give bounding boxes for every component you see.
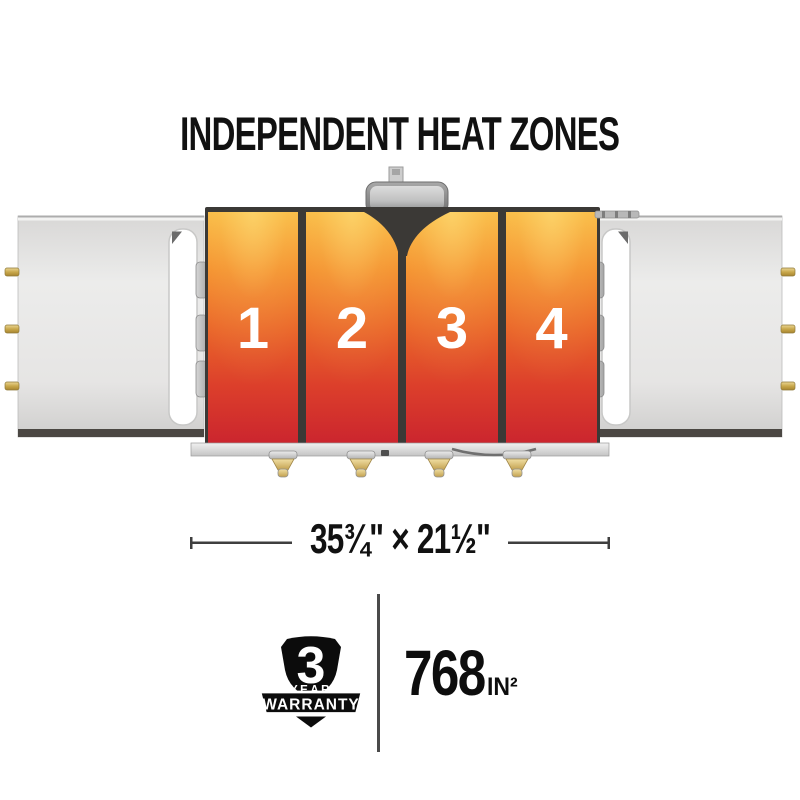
knob-body: [428, 459, 450, 470]
knob-stem: [356, 469, 366, 477]
knob-flange: [269, 451, 297, 459]
knob-flange: [503, 451, 531, 459]
left-shelf-top-edge: [18, 216, 204, 218]
knob-stem: [278, 469, 288, 477]
zone-4-number: 4: [535, 296, 567, 361]
right-shelf-handle-cutout: [602, 229, 630, 425]
info-divider-line: [377, 594, 380, 752]
cooking-area: 768 IN²: [404, 641, 520, 705]
griddle-illustration: 1 2 3 4: [0, 0, 800, 800]
right-shelf-front-edge: [596, 429, 782, 437]
knob-body: [272, 459, 294, 470]
dimension-label-text: 35¾" × 21½": [310, 518, 490, 560]
control-knob-4: [503, 451, 531, 477]
zone-2-number: 2: [336, 296, 368, 361]
control-knob-3: [425, 451, 453, 477]
dimension-label: 35¾" × 21½": [0, 518, 800, 560]
knob-stem: [434, 469, 444, 477]
warranty-banner-label: WARRANTY: [262, 697, 360, 714]
tool-hook-pin: [5, 325, 19, 333]
warranty-badge: 3 YEAR WARRANTY: [260, 636, 362, 727]
hinge-rail-tick: [602, 211, 605, 218]
control-knob-2: [347, 451, 375, 477]
control-panel: [191, 443, 609, 477]
tool-hook-pin: [781, 268, 795, 276]
left-shelf-handle-cutout: [169, 229, 197, 425]
zone-1-number: 1: [237, 296, 269, 361]
left-shelf-top-highlight: [18, 218, 204, 221]
left-tool-hook-pins: [5, 268, 19, 390]
zone-3-number: 3: [436, 296, 468, 361]
knob-body: [350, 459, 372, 470]
tool-hook-pin: [5, 268, 19, 276]
knob-flange: [347, 451, 375, 459]
warranty-badge-point: [296, 717, 326, 728]
tool-hook-pin: [5, 382, 19, 390]
knob-stem: [512, 469, 522, 477]
left-side-shelf: [5, 216, 204, 438]
control-knob-1: [269, 451, 297, 477]
right-tool-hook-pins: [781, 268, 795, 390]
cooking-area-unit: IN²: [487, 673, 518, 702]
grease-cup-tab-notch: [392, 169, 400, 175]
front-panel: [191, 443, 609, 456]
rear-grease-cup: [366, 167, 448, 214]
hinge-rail-tick: [628, 211, 631, 218]
left-shelf-front-edge: [18, 429, 204, 437]
knob-flange: [425, 451, 453, 459]
right-side-shelf: [596, 216, 795, 438]
cooking-area-value: 768: [404, 641, 485, 705]
knob-body: [506, 459, 528, 470]
griddle-top: [205, 207, 639, 446]
tool-hook-pin: [781, 382, 795, 390]
hinge-rail-tick: [615, 211, 618, 218]
panel-latch: [381, 450, 389, 456]
product-infographic: INDEPENDENT HEAT ZONES: [0, 0, 800, 800]
tool-hook-pin: [781, 325, 795, 333]
